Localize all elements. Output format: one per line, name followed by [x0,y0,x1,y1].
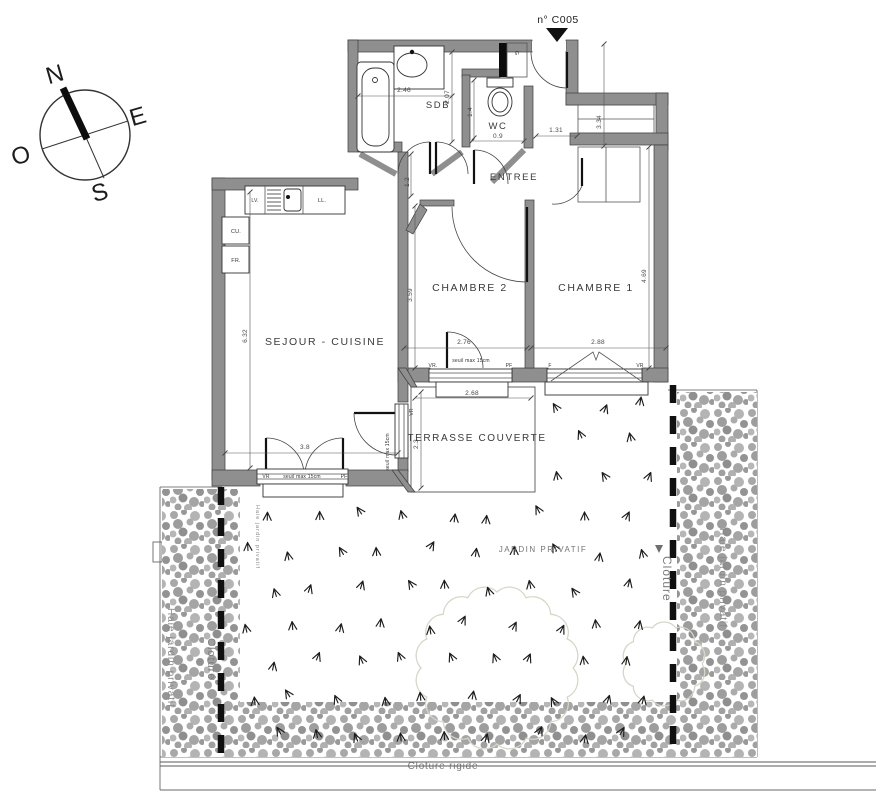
grass-mark [490,652,500,662]
chambre1-label: CHAMBRE 1 [558,282,634,294]
haie-left-label: Haie jardin privatif [165,608,176,708]
cloture-rigide: Cloture rigide [160,761,876,790]
grass-mark [557,624,568,635]
grass-mark [482,515,491,524]
grass-mark [509,620,520,631]
grass-mark [600,403,610,413]
grass-mark [513,693,524,704]
sejour-label: SEJOUR - CUISINE [265,336,385,348]
dim-entree-w: 1.31 [549,127,563,134]
lv-label: LV. [251,198,258,204]
grass-mark [569,586,580,597]
chambre1-window-frame [547,369,642,382]
chambre2-window-frame [429,369,512,382]
floor-plan-page: JARDIN PRIVATIF Haie jardin privatif Clo… [0,0,876,800]
grass-mark [288,621,297,630]
sejour-sill [263,484,343,497]
cloture-arrow-icon [655,545,663,553]
wc-label: WC [488,121,507,132]
grass-mark [446,652,457,663]
chambre2-label: CHAMBRE 2 [432,282,508,294]
grass-mark [316,511,324,519]
grass-mark [269,661,278,670]
haie-right-label: Haie jardin privatif [717,528,728,628]
entrance-marker-icon [546,28,568,42]
grass-mark [550,401,561,412]
grass-mark [580,512,588,520]
grass-mark [397,510,407,520]
grass-mark [644,471,654,481]
chambre1-f-label: F [548,363,551,369]
dim-sejour-d: 6.32 [242,329,249,343]
grass-mark [354,505,365,516]
compass-o: O [8,140,33,171]
grass-mark [626,432,635,441]
compass-rose: N E O S [8,59,149,208]
terrace-door-vr-label: VR [409,408,415,416]
grass-mark [304,583,314,593]
grass-mark [313,651,323,661]
terrace-door-frame [395,404,408,458]
duct [499,43,507,77]
floor-plan-drawing: JARDIN PRIVATIF Haie jardin privatif Clo… [0,0,876,800]
chambre1-sill [545,382,648,395]
grass-mark [336,623,345,632]
grass-mark [357,580,367,590]
grass-mark [525,580,534,589]
sejour-vr-label: VR [262,474,270,480]
gaine-label: G [513,51,519,55]
dim-ch2-d: 3.59 [407,288,414,302]
grass-mark [416,692,425,701]
cloture-left-label: Cloturé [205,638,217,680]
grass-mark [595,552,604,561]
fr-label: FR. [231,258,241,264]
sejour-pf-label: PF [341,474,348,480]
grass-mark [458,614,469,625]
chambre2-seuil-label: seuil max 15cm [452,358,490,364]
toilet-tank [487,78,513,87]
grass-mark [468,690,477,699]
grass-mark [244,542,252,550]
dim-wc-d: 1.4 [467,107,474,117]
grass-mark [426,540,437,551]
jardin-privatif-label: JARDIN PRIVATIF [499,545,587,554]
grass-mark [579,656,588,665]
compass-n: N [43,59,67,90]
grass-mark [591,619,600,628]
compass-needle [63,88,87,139]
grass-mark [552,471,561,480]
washbasin [397,53,427,77]
dim-sejour-door-w: 3.8 [300,444,310,451]
grass-mark [356,654,367,665]
haie-small-label: Haie jardin privatif [254,505,260,569]
sdb-label: SDB [426,100,450,111]
cloture-right-label: Cloture [660,556,674,602]
dim-terrasse-w: 2.68 [465,390,479,397]
dim-ch1-d: 4.69 [641,269,648,283]
dim-wc-w: 0.9 [493,133,503,140]
dim-sdb-w: 2.46 [397,87,411,94]
dim-ch2-w: 2.76 [457,339,471,346]
grass-mark [636,396,645,405]
grass-mark [575,429,586,440]
grass-mark [283,551,292,560]
sejour-seuil-label: seuil max 15cm [283,474,321,480]
chambre1-vr-label: VR [636,363,644,369]
grass-mark [599,470,610,481]
grass-mark [450,513,459,522]
dim-entree-d: 3.34 [596,115,603,129]
grass-mark [440,580,448,588]
terrace-door-seuil-label: seuil max 15cm [385,433,391,471]
grass-mark [405,578,416,589]
grass-mark [624,578,634,588]
grass-mark [241,623,251,633]
gate-post [153,542,162,562]
grass-mark [638,548,648,558]
grass-mark [282,688,293,699]
unit-number-label: n° C005 [537,14,579,26]
terrasse-label: TERRASSE COUVERTE [407,433,546,444]
grass-mark [395,651,405,661]
grass-mark [532,504,543,515]
kitchen-sink [284,189,301,211]
grass-mark [263,512,271,520]
hedge-bottom [162,702,757,757]
entree-label: ENTREE [490,172,538,183]
cu-label: CU. [231,229,241,235]
compass-s: S [89,178,112,208]
grass-mark [622,510,633,521]
chambre2-vr-label: VR. [429,363,438,369]
grass-mark [471,548,480,557]
dim-ch1-w: 2.88 [591,339,605,346]
grass-mark [372,547,381,556]
grass-mark [336,546,347,557]
grass-mark [270,588,280,598]
ll-label: LL. [318,198,327,204]
grass-mark [523,652,534,663]
dim-hall-w: 1.2 [404,177,411,187]
chambre2-pf-label: PF [506,363,513,369]
grass-mark [376,618,385,627]
